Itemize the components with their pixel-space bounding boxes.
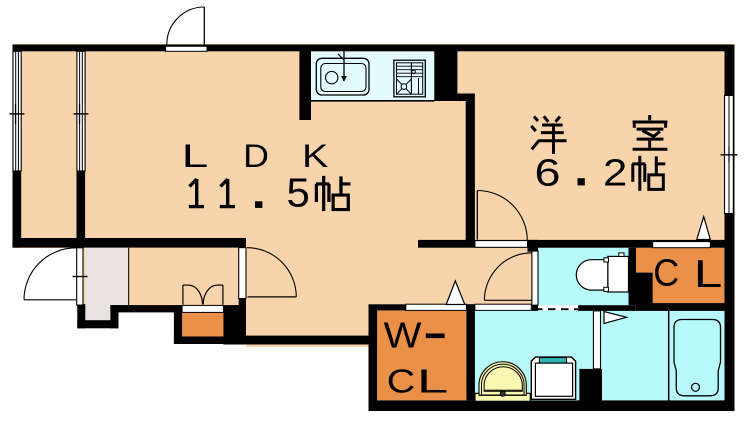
svg-text:K: K bbox=[302, 137, 328, 174]
svg-text:D: D bbox=[243, 139, 269, 175]
svg-text:5: 5 bbox=[287, 170, 310, 215]
svg-text:L: L bbox=[417, 362, 448, 400]
svg-text:C: C bbox=[387, 362, 415, 399]
svg-text:6: 6 bbox=[534, 151, 560, 194]
svg-text:C: C bbox=[653, 252, 679, 294]
svg-text:W: W bbox=[384, 316, 422, 356]
svg-text:L: L bbox=[182, 138, 209, 175]
svg-text:2: 2 bbox=[603, 151, 627, 194]
svg-text:L: L bbox=[694, 252, 723, 296]
